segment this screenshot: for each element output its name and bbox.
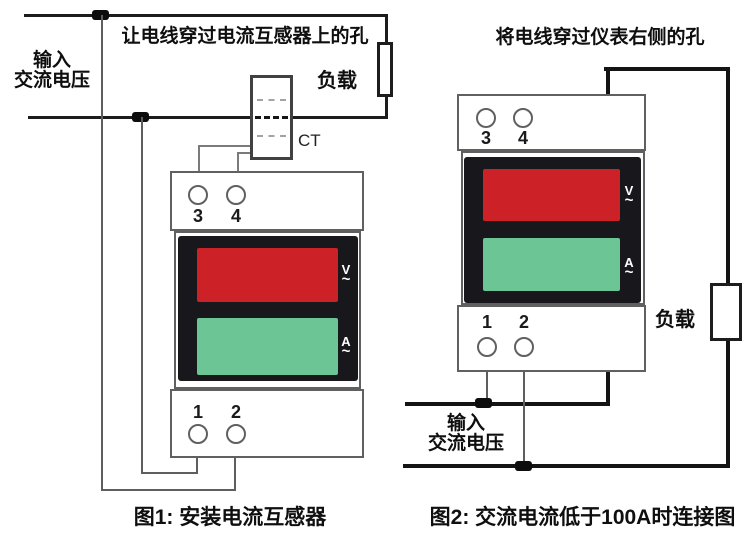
fig1-instruction: 让电线穿过电流互感器上的孔: [105, 26, 385, 48]
fig1-load-bottom-lead: [385, 96, 388, 118]
fig2-junction-dot-line1: [475, 398, 492, 408]
fig1-ct-wire-a-run: [198, 145, 253, 147]
fig2-through-wire-top: [604, 67, 730, 71]
fig2-through-wire-top-stub: [606, 67, 610, 96]
fig1-voltage-display: [197, 248, 338, 302]
fig2-caption: 图2: 交流电流低于100A时连接图: [415, 506, 750, 530]
fig1-return-wire-mid: [141, 117, 143, 474]
fig2-terminal-label-3: 3: [476, 129, 496, 147]
fig1-ct-dash-bottom: [257, 135, 286, 137]
fig1-terminal-hole-4: [226, 185, 246, 205]
fig1-caption: 图1: 安装电流互感器: [85, 506, 375, 530]
fig2-load-top-lead: [726, 67, 730, 285]
fig1-terminal-label-4: 4: [226, 207, 246, 225]
fig2-current-symbol: A ~: [619, 257, 639, 277]
fig1-input-voltage-label: 输入 交流电压: [8, 51, 96, 91]
fig1-voltage-symbol: V ~: [336, 264, 356, 284]
fig2-terminal-label-1: 1: [477, 313, 497, 331]
fig1-terminal-hole-3: [188, 185, 208, 205]
fig1-ac-line1: [24, 14, 388, 17]
fig1-terminal1-drop: [196, 458, 198, 474]
fig1-terminal2-drop: [234, 458, 236, 491]
fig2-terminal-hole-3: [476, 108, 496, 128]
wiring-diagram-page: CT 3 4 V ~ A ~ 1 2 让电线穿过电流互感器上的孔 输入 交流电压…: [0, 0, 750, 553]
fig1-load-resistor: [377, 42, 393, 97]
fig2-load-label: 负载: [655, 303, 695, 332]
fig1-ct-wire-b-drop: [237, 152, 239, 172]
fig1-ac-line2-right: [291, 116, 388, 119]
fig2-terminal-hole-4: [513, 108, 533, 128]
fig2-terminal-label-2: 2: [514, 313, 534, 331]
fig1-ct-label: CT: [298, 131, 321, 151]
fig2-voltage-display: [483, 169, 620, 221]
fig2-input-label-line2: 交流电压: [422, 434, 510, 454]
fig1-line1-corner-down: [385, 14, 388, 43]
fig1-return-wire-left: [101, 15, 103, 491]
fig2-terminal2-drop: [523, 372, 525, 464]
fig1-terminal1-run: [141, 472, 198, 474]
fig1-terminal-label-1: 1: [188, 403, 208, 421]
fig1-current-symbol: A ~: [336, 336, 356, 356]
fig1-terminal-hole-2: [226, 424, 246, 444]
fig1-input-label-line1: 输入: [8, 51, 96, 71]
fig2-through-wire-bottom-stub: [606, 372, 610, 406]
fig2-terminal-label-4: 4: [513, 129, 533, 147]
fig2-load-bottom-lead: [726, 339, 730, 468]
fig1-terminal-hole-1: [188, 424, 208, 444]
fig1-display-bezel: V ~ A ~: [178, 236, 358, 381]
fig1-terminal2-run: [101, 489, 236, 491]
fig2-ac-line2: [403, 464, 730, 468]
fig2-ac-line1: [405, 402, 610, 406]
fig1-terminal-label-3: 3: [188, 207, 208, 225]
fig2-load-resistor: [710, 283, 742, 341]
fig2-terminal-hole-2: [514, 337, 534, 357]
fig1-ct-wire-pass-through: [255, 116, 288, 119]
fig1-ct-box: [250, 75, 293, 160]
fig1-input-label-line2: 交流电压: [8, 71, 96, 91]
fig1-terminal-label-2: 2: [226, 403, 246, 421]
fig2-display-bezel: V ~ A ~: [464, 157, 641, 303]
fig1-ct-dash-top: [257, 99, 286, 101]
fig2-input-label-line1: 输入: [422, 414, 510, 434]
fig2-current-display: [483, 238, 620, 291]
fig1-ct-wire-a-drop: [198, 145, 200, 172]
fig1-current-display: [197, 318, 338, 375]
fig2-input-voltage-label: 输入 交流电压: [422, 414, 510, 454]
fig2-instruction: 将电线穿过仪表右侧的孔: [465, 27, 735, 49]
fig2-junction-dot-line2: [515, 461, 532, 471]
fig2-voltage-symbol: V ~: [619, 185, 639, 205]
fig1-load-label: 负载: [317, 64, 357, 93]
fig2-terminal-hole-1: [477, 337, 497, 357]
